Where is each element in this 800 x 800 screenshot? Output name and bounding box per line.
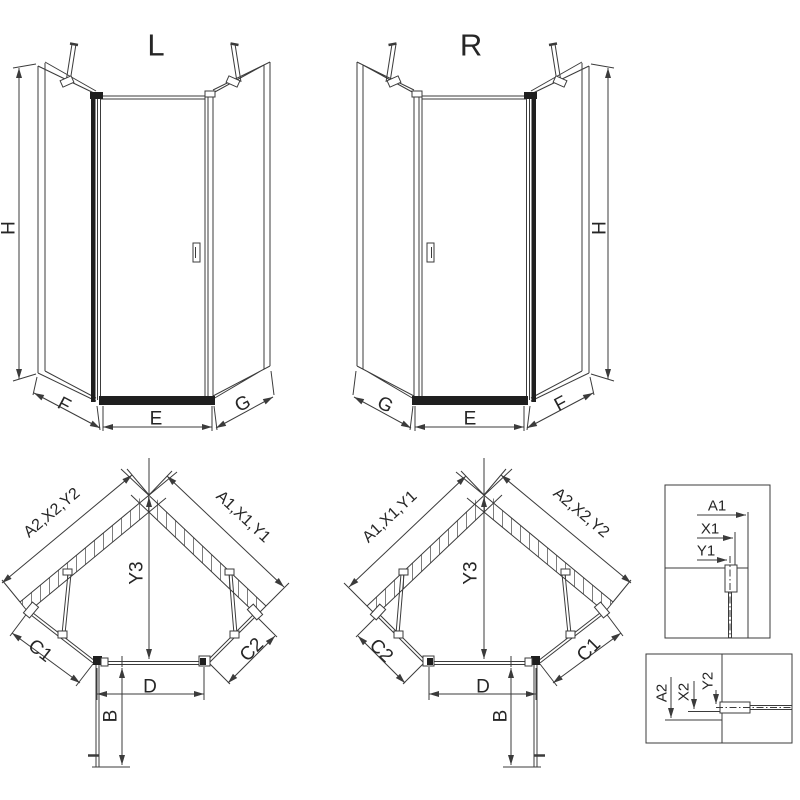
door-swing-dim-label: B xyxy=(491,710,512,723)
door-width-dim-label: D xyxy=(143,677,157,698)
dim-label-e-right: E xyxy=(464,409,477,430)
fixed-panel-dim-right: C1 xyxy=(573,634,605,666)
dim-label-height-left: H xyxy=(0,221,20,235)
depth-dim-label: Y3 xyxy=(461,561,482,584)
shower-enclosure-drawing: L H F E G R G E F H A2,X2,Y2 A1,X1,Y1 Y3… xyxy=(0,0,800,800)
wall-dim-label-upper-right: A2,X2,Y2 xyxy=(550,485,613,542)
wall-dim-label-upper-left: A2,X2,Y2 xyxy=(21,485,84,542)
plan-left-drawing xyxy=(2,458,289,767)
plan-right-view: A1,X1,Y1 A2,X2,Y2 Y3 C2 C1 D B xyxy=(344,458,631,767)
dim-label-f-right: F xyxy=(551,392,571,416)
detail-dim-glass-axis: Y1 xyxy=(697,543,715,560)
dim-label-g-right: G xyxy=(374,392,397,417)
detail-view-right-wall: A1 X1 Y1 xyxy=(665,485,770,638)
depth-dim-label: Y3 xyxy=(127,561,148,584)
wall-dim-label-upper-right: A1,X1,Y1 xyxy=(212,488,273,547)
elevation-left-drawing xyxy=(13,44,274,432)
fixed-panel-dim-right: C2 xyxy=(236,634,268,666)
detail-view-left-wall: A2 X2 Y2 xyxy=(646,654,792,743)
detail-dim-profile: X2 xyxy=(676,683,693,701)
plan-left-view: A2,X2,Y2 A1,X1,Y1 Y3 C1 C2 D B xyxy=(2,458,289,767)
elevation-right-drawing xyxy=(353,44,614,432)
fixed-panel-dim-left: C2 xyxy=(365,635,397,667)
dim-label-e-left: E xyxy=(150,409,163,430)
wall-dim-label-upper-left: A1,X1,Y1 xyxy=(359,488,420,547)
detail-dim-glass-axis: Y2 xyxy=(700,672,717,690)
variant-right-title: R xyxy=(460,28,482,63)
variant-left-title: L xyxy=(147,28,164,63)
dim-label-height-right: H xyxy=(590,221,611,235)
plan-right-drawing xyxy=(344,458,631,767)
elevation-left-view: L H F E G xyxy=(0,28,274,432)
elevation-right-view: R G E F H xyxy=(353,28,614,432)
dim-label-f-left: F xyxy=(54,393,74,417)
door-swing-dim-label: B xyxy=(101,710,122,723)
door-width-dim-label: D xyxy=(476,677,490,698)
detail-dim-wall: A1 xyxy=(708,498,726,515)
detail-dim-wall: A2 xyxy=(654,684,671,702)
detail-dim-profile: X1 xyxy=(701,521,719,538)
dim-label-g-left: G xyxy=(232,391,255,416)
technical-drawing-canvas: L H F E G R G E F H A2,X2,Y2 A1,X1,Y1 Y3… xyxy=(0,0,800,800)
